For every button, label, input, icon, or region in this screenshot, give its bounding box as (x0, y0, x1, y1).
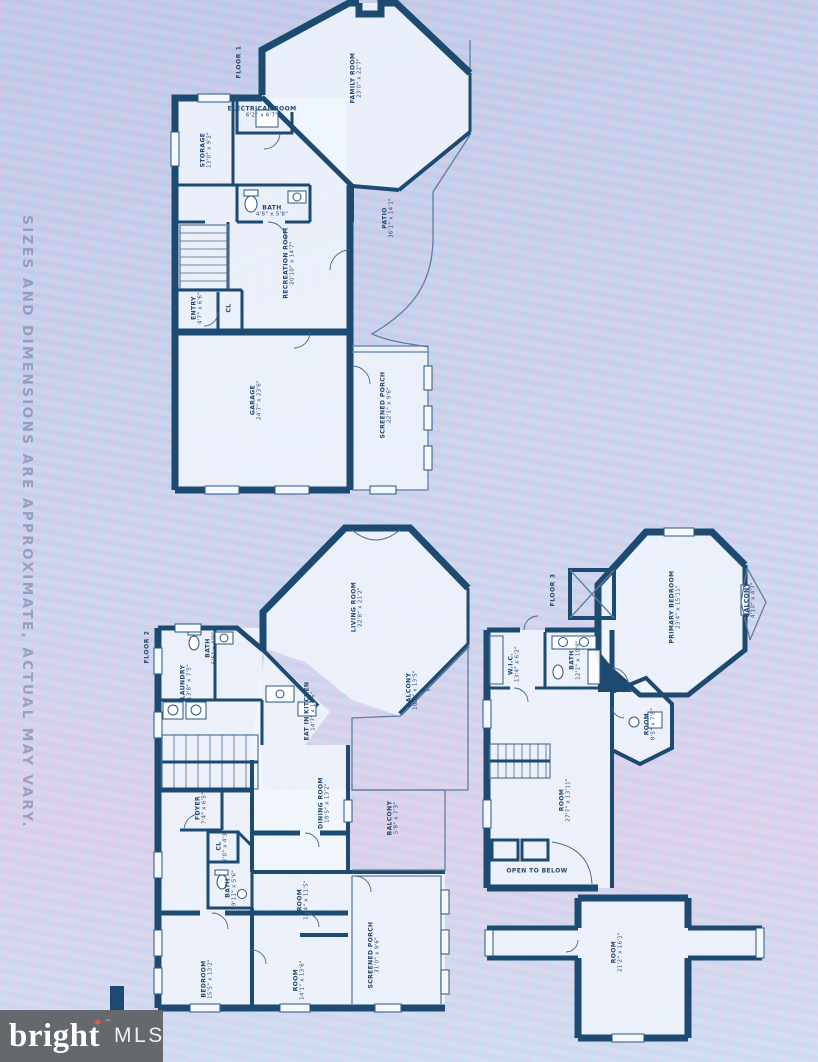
window (756, 928, 764, 958)
window (483, 800, 491, 828)
window (424, 446, 432, 470)
room-label-living-room: LIVING ROOM22'8" x 21'2" (350, 582, 364, 632)
room-label-room-f2-lower: ROOM14'1" x 13'6" (292, 960, 306, 1000)
mls-wordmark: MLS (114, 1024, 165, 1048)
trademark-symbol: ™ (105, 1019, 111, 1026)
floor-1-tag: FLOOR 1 (236, 46, 243, 79)
window (154, 968, 162, 994)
room-label-family-room: FAMILY ROOM23'0" x 22'7" (349, 53, 363, 104)
label-open-to-below: OPEN TO BELOW (506, 868, 567, 875)
window (441, 970, 449, 994)
floor-plan-photo: FLOOR 1 FAMILY ROOM23'0" x 22'7" ELECTRI… (0, 0, 818, 1062)
room-label-recreation-room: RECREATION ROOM20'10" x 14'7" (282, 227, 296, 298)
room-label-balcony-lower: BALCONY5'8" x 7'3" (386, 801, 400, 836)
window (175, 624, 201, 632)
room-label-bath-f2-top: BATH5'5" x 4'9" (204, 632, 218, 664)
room-label-eat-in-kitchen: EAT IN KITCHEN14'7" x 14'6" (303, 682, 317, 741)
room-label-cl-f2: CL2'0" x 4'3" (215, 830, 229, 862)
window (612, 1034, 644, 1042)
washer-icon (168, 705, 178, 715)
disclaimer-watermark: SIZES AND DIMENSIONS ARE APPROXIMATE, AC… (19, 215, 35, 829)
window (664, 528, 694, 536)
window (154, 712, 162, 738)
room-label-room-f3-small: ROOM8'5" x 7'8" (643, 708, 657, 740)
window (424, 406, 432, 430)
brightmls-logo: bright ✦ ™ MLS (0, 1010, 163, 1062)
floor-plan-1 (171, 3, 470, 494)
sink-icon (629, 717, 639, 727)
room-label-primary-bedroom: PRIMARY BEDROOM23'4" x 15'11" (668, 570, 682, 643)
room-label-garage: GARAGE24'7" x 23'6" (249, 380, 263, 420)
window (205, 486, 239, 494)
window (483, 700, 491, 728)
sink-icon (276, 690, 284, 698)
room-label-balcony-upper: BALCONY18'4" x 13'5" (405, 670, 419, 710)
toilet-icon (189, 636, 199, 650)
room-label-screened-porch-f1: SCREENED PORCH22'1" x 9'6" (379, 372, 393, 439)
window (280, 1004, 310, 1012)
floor-plan-2 (154, 528, 468, 1012)
room-label-room-f2-upper: ROOM14'4" x 11'5" (296, 880, 310, 920)
room-label-bath-f3: BATH12'1" x 10'8" (568, 640, 582, 680)
window (154, 852, 162, 878)
room-label-entry: ENTRY4'7" x 6'6" (190, 292, 204, 324)
floor-plan-drawing (0, 0, 818, 1062)
window (485, 930, 493, 956)
toilet-icon (553, 665, 563, 679)
window (275, 486, 309, 494)
door-arc (524, 616, 538, 630)
sink-icon (238, 890, 247, 899)
sink-icon (293, 193, 301, 201)
room-label-cl-f1: CL (226, 303, 233, 312)
room-label-bedroom: BEDROOM15'5" x 13'2" (200, 959, 214, 999)
room-label-laundry: LAUNDRY13'8" x 7'5" (179, 664, 193, 700)
room-label-bath-f1: BATH4'6" x 5'8" (256, 204, 288, 218)
room-label-room-f3-mid: ROOM27'7" x 13'11" (558, 778, 572, 822)
window (198, 94, 230, 102)
window (154, 930, 162, 956)
bathtub-icon (588, 650, 600, 684)
room-label-foyer: FOYER7'4" x 6'5" (194, 792, 208, 824)
sink-icon (220, 634, 228, 642)
toilet-icon (244, 190, 258, 196)
window (344, 800, 352, 822)
brand-wordmark: bright (9, 1018, 100, 1054)
room-label-balcony-f3: BALCONY4'10" x 4'7" (743, 582, 757, 618)
wall-fragment (110, 986, 124, 1010)
floor-2-tag: FLOOR 2 (144, 631, 151, 664)
window (370, 486, 396, 494)
window (171, 132, 179, 166)
window (375, 1004, 401, 1012)
room-label-electrical-room: ELECTRICAL ROOM6'2" x 6'7" (227, 105, 296, 119)
room-label-storage: STORAGE13'0" x 9'2" (199, 132, 213, 168)
sink-icon (559, 638, 568, 647)
floor-3-tag: FLOOR 3 (550, 574, 557, 607)
room-label-patio: PATIO36'1" x 14'1" (381, 198, 395, 238)
room-label-bath-f2-lower: BATH9'11" x 5'6" (224, 870, 238, 906)
room-label-screened-porch-f2: SCREENED PORCH31'0" x 9'6" (367, 922, 381, 989)
floor-plan-3 (483, 528, 766, 1042)
window (424, 366, 432, 390)
room-label-wic: W.I.C.13'4" x 6'2" (507, 646, 521, 682)
dryer-icon (191, 705, 201, 715)
room-label-dining-room: DINING ROOM18'5" x 13'2" (317, 777, 331, 829)
window (154, 648, 162, 674)
room-label-room-f3-bottom: ROOM21'2" x 16'1" (610, 932, 624, 972)
window (441, 890, 449, 914)
window (190, 1004, 220, 1012)
star-icon: ✦ (92, 1016, 103, 1031)
window (441, 930, 449, 954)
